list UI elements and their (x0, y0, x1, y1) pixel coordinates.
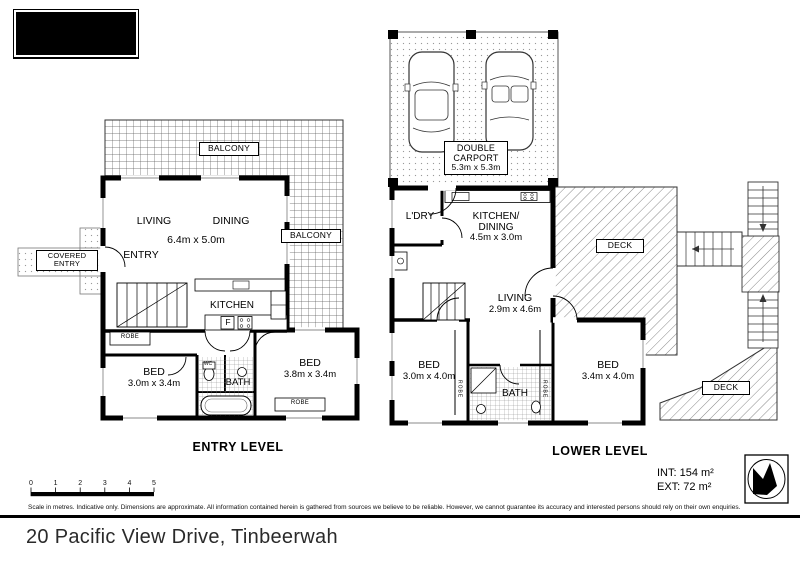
room-dims-living-lower: 2.9m x 4.6m (477, 305, 553, 316)
room-dims-bed2: 3.8m x 3.4m (276, 370, 344, 381)
room-label-bath: BATH (219, 378, 257, 389)
scale-tick-label: 2 (78, 480, 82, 487)
bathtub-inner (205, 399, 247, 412)
room-label-laundry: L'DRY (392, 211, 448, 222)
plan-title-lower-level: LOWER LEVEL (535, 444, 665, 458)
north-arrow-icon (745, 455, 788, 503)
toilet-icon (204, 368, 214, 381)
scale-tick-label: 1 (54, 480, 58, 487)
room-dims-bed1: 3.0m x 3.4m (120, 379, 188, 390)
kitchen-dining-dims: 4.5m x 3.0m (452, 233, 540, 244)
agency-logo-underline (13, 57, 139, 59)
scale-tick-label: 4 (127, 480, 131, 487)
agency-logo-fill (16, 12, 136, 55)
robe-label: ROBE (541, 380, 547, 398)
room-label-entry: ENTRY (113, 250, 169, 262)
kitchen-counter-lower (445, 191, 550, 203)
scale-tick-label: 5 (152, 480, 156, 487)
toilet-icon (532, 401, 541, 413)
scale-tick-label: 3 (103, 480, 107, 487)
carport-label: DOUBLE CARPORT 5.3m x 5.3m (444, 141, 508, 175)
external-area-text: EXT: 72 m² (657, 481, 711, 493)
scale-tick-label: 0 (29, 480, 33, 487)
external-stairs (677, 182, 779, 348)
basin-icon (477, 405, 486, 414)
room-label-balcony-right: BALCONY (281, 229, 341, 243)
footer-divider (0, 515, 800, 518)
internal-area-text: INT: 154 m² (657, 467, 714, 479)
scale-bar: 0 1 2 3 4 5 (29, 480, 156, 496)
room-label-living-lower: LIVING (483, 293, 547, 305)
disclaimer-text: Scale in metres. Indicative only. Dimens… (28, 504, 740, 511)
room-label-living: LIVING (126, 216, 182, 228)
stairs-icon-lower (423, 283, 465, 320)
room-label-covered-entry: COVERED ENTRY (36, 250, 98, 271)
property-address: 20 Pacific View Drive, Tinbeerwah (26, 526, 338, 549)
room-label-bed1-lower: BED (401, 360, 457, 372)
room-dims-bed2-lower: 3.4m x 4.0m (574, 372, 642, 383)
room-label-dining: DINING (203, 216, 259, 228)
plan-title-entry-level: ENTRY LEVEL (170, 440, 306, 454)
washer-icon (394, 252, 407, 270)
kitchen-dining-label: KITCHEN/ DINING 4.5m x 3.0m (452, 211, 540, 244)
fridge-label: F (222, 318, 234, 328)
robe-label: ROBE (284, 400, 316, 407)
car-icon (482, 52, 536, 150)
room-label-bed2: BED (282, 358, 338, 370)
carport-label-line1: DOUBLE (447, 143, 505, 153)
room-label-bed1: BED (126, 367, 182, 379)
room-label-kitchen: KITCHEN (204, 300, 260, 311)
room-label-bath-lower: BATH (493, 388, 537, 399)
deck-label-upper: DECK (596, 239, 644, 253)
robe-label: ROBE (114, 334, 146, 341)
room-dims-bed1-lower: 3.0m x 4.0m (395, 372, 463, 383)
floorplan-page: 0 1 2 3 4 5 BALCONY BALCONY LIVI (0, 0, 800, 566)
basin-icon (238, 368, 247, 377)
room-dims-living-dining: 6.4m x 5.0m (160, 235, 232, 247)
agency-logo (13, 9, 139, 58)
deck-label-lower: DECK (702, 381, 750, 395)
robe-label: ROBE (456, 380, 462, 398)
wc-label: WC (199, 362, 217, 368)
cooktop-icon (238, 317, 252, 330)
car-icon (405, 52, 458, 152)
kitchen-dining-line1: KITCHEN/ (452, 211, 540, 222)
deck-area-lower (660, 340, 777, 420)
room-label-bed2-lower: BED (580, 360, 636, 372)
stairs-icon-entry (117, 283, 187, 327)
room-label-balcony-top: BALCONY (199, 142, 259, 156)
carport-dims: 5.3m x 5.3m (447, 163, 505, 173)
